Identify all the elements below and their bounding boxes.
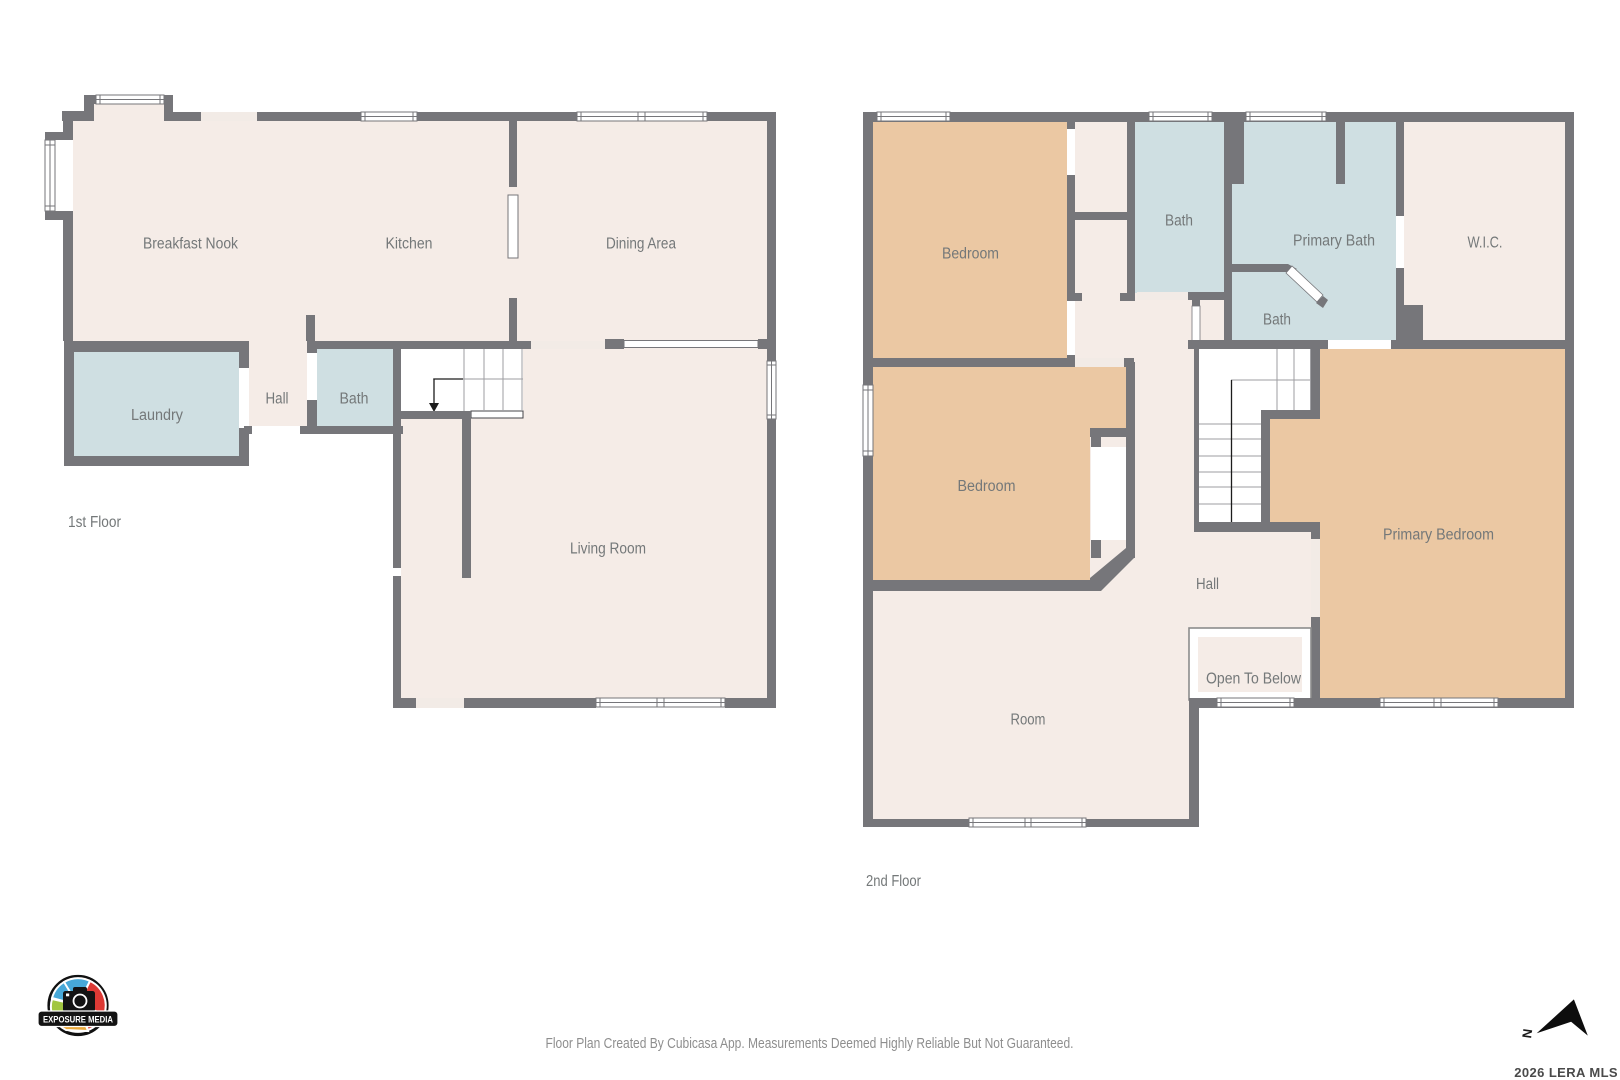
svg-text:Room: Room bbox=[1011, 712, 1046, 729]
svg-text:Bedroom: Bedroom bbox=[958, 478, 1016, 495]
svg-text:Hall: Hall bbox=[266, 391, 289, 408]
svg-text:W.I.C.: W.I.C. bbox=[1468, 235, 1503, 252]
svg-text:EXPOSURE MEDIA: EXPOSURE MEDIA bbox=[43, 1015, 113, 1026]
svg-text:N: N bbox=[1519, 1028, 1535, 1039]
svg-text:Breakfast Nook: Breakfast Nook bbox=[143, 236, 238, 253]
svg-text:2026 LERA MLS: 2026 LERA MLS bbox=[1514, 1065, 1618, 1080]
svg-text:Primary Bedroom: Primary Bedroom bbox=[1383, 527, 1494, 544]
svg-text:Living Room: Living Room bbox=[570, 541, 646, 558]
svg-text:Bedroom: Bedroom bbox=[942, 246, 999, 263]
svg-text:Floor Plan Created By Cubicasa: Floor Plan Created By Cubicasa App. Meas… bbox=[546, 1036, 1074, 1052]
svg-text:Hall: Hall bbox=[1196, 576, 1219, 593]
svg-text:Bath: Bath bbox=[1263, 312, 1291, 329]
svg-text:Primary Bath: Primary Bath bbox=[1293, 233, 1375, 250]
svg-text:2nd Floor: 2nd Floor bbox=[866, 873, 921, 890]
svg-text:Open To Below: Open To Below bbox=[1206, 671, 1302, 688]
svg-text:Laundry: Laundry bbox=[131, 407, 183, 424]
svg-text:1st Floor: 1st Floor bbox=[68, 514, 121, 531]
svg-text:Bath: Bath bbox=[1165, 213, 1193, 230]
svg-text:Dining Area: Dining Area bbox=[606, 236, 676, 253]
svg-text:Kitchen: Kitchen bbox=[386, 236, 433, 253]
svg-text:Bath: Bath bbox=[340, 391, 369, 408]
